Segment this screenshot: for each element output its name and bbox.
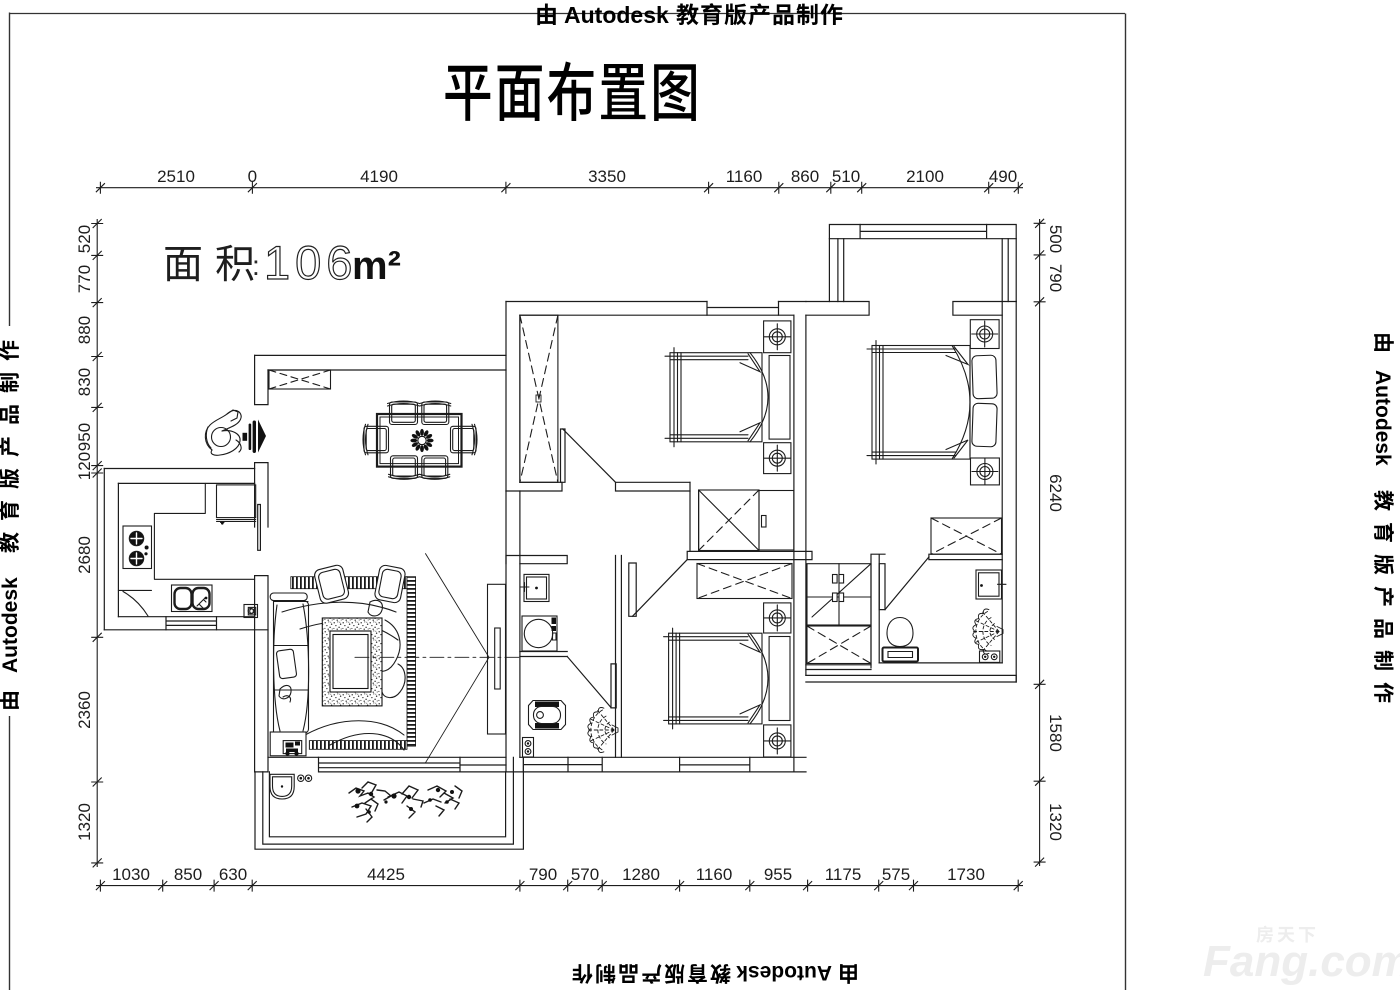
svg-text:500: 500 (1046, 225, 1065, 253)
svg-text:0: 0 (248, 167, 257, 186)
svg-text:1160: 1160 (726, 167, 763, 186)
svg-text:510: 510 (832, 167, 860, 186)
svg-text:955: 955 (764, 865, 792, 884)
svg-text:630: 630 (219, 865, 247, 884)
svg-text:830: 830 (75, 368, 94, 396)
svg-text:120: 120 (75, 452, 94, 480)
svg-text:1320: 1320 (1046, 803, 1065, 841)
svg-text:2680: 2680 (75, 536, 94, 574)
svg-text:1320: 1320 (75, 803, 94, 841)
svg-text:575: 575 (882, 865, 910, 884)
svg-text:m²: m² (352, 244, 401, 288)
svg-text:1730: 1730 (947, 865, 985, 884)
svg-text:6240: 6240 (1046, 474, 1065, 512)
svg-text:Autodesk: Autodesk (736, 961, 832, 984)
svg-text:1280: 1280 (622, 865, 660, 884)
svg-text:Fang.com: Fang.com (1203, 937, 1400, 986)
svg-text::: : (252, 250, 260, 281)
svg-text:520: 520 (75, 225, 94, 253)
svg-text:Autodesk: Autodesk (1371, 370, 1394, 466)
svg-text:790: 790 (529, 865, 557, 884)
svg-text:770: 770 (75, 265, 94, 293)
svg-text:106: 106 (264, 236, 357, 289)
svg-text:880: 880 (75, 316, 94, 344)
svg-text:3350: 3350 (588, 167, 626, 186)
svg-text:2510: 2510 (157, 167, 195, 186)
svg-text:1175: 1175 (825, 865, 862, 884)
svg-text:4190: 4190 (360, 167, 398, 186)
svg-text:950: 950 (75, 423, 94, 451)
svg-text:850: 850 (174, 865, 202, 884)
svg-text:2100: 2100 (906, 167, 944, 186)
svg-text:Autodesk: Autodesk (0, 577, 22, 673)
svg-text:2360: 2360 (75, 691, 94, 729)
svg-text:1160: 1160 (696, 865, 733, 884)
svg-text:790: 790 (1046, 264, 1065, 292)
svg-text:1580: 1580 (1046, 714, 1065, 752)
svg-text:Autodesk: Autodesk (564, 2, 669, 28)
svg-text:1030: 1030 (112, 865, 150, 884)
svg-text:4425: 4425 (367, 865, 405, 884)
svg-text:490: 490 (989, 167, 1017, 186)
svg-text:860: 860 (791, 167, 819, 186)
svg-text:570: 570 (571, 865, 599, 884)
